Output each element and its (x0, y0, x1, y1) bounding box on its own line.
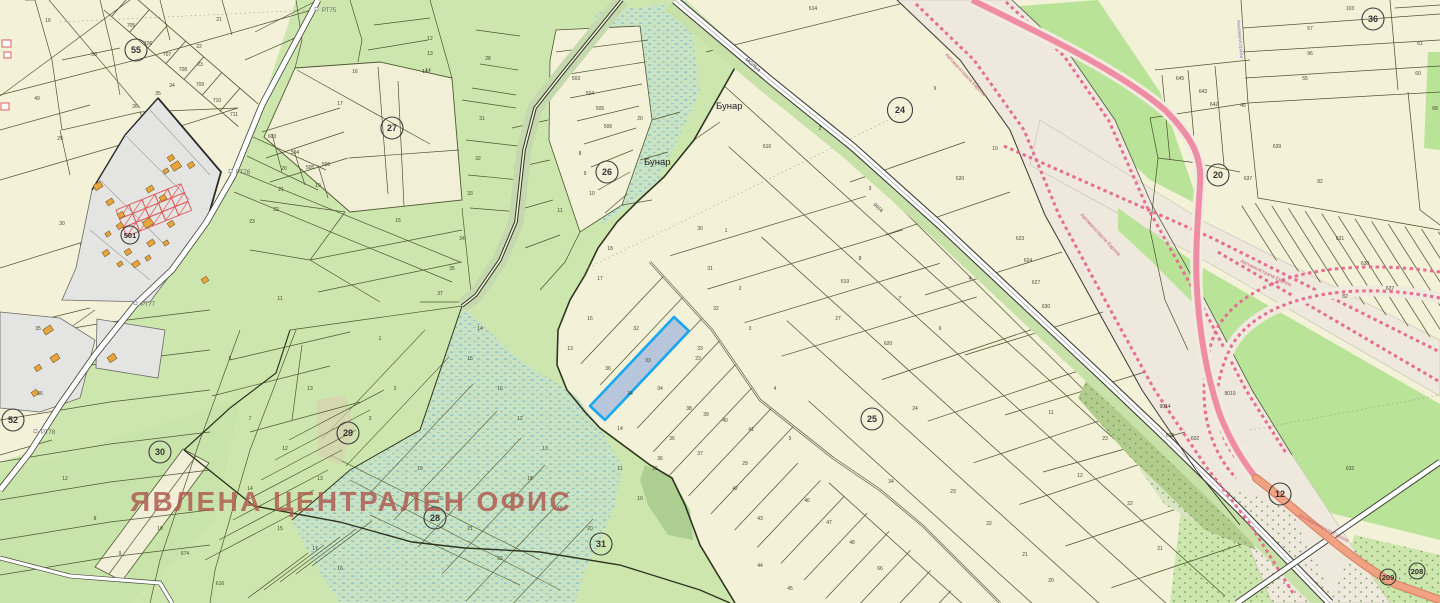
svg-text:41: 41 (748, 427, 754, 433)
svg-text:23: 23 (950, 489, 956, 495)
svg-text:9014: 9014 (1159, 404, 1170, 410)
svg-text:504: 504 (291, 150, 300, 156)
svg-text:637: 637 (1244, 176, 1253, 182)
svg-text:52: 52 (8, 415, 18, 425)
svg-text:22: 22 (986, 521, 992, 527)
svg-text:82: 82 (1317, 179, 1323, 185)
svg-text:38: 38 (686, 406, 692, 412)
svg-text:34: 34 (657, 386, 663, 392)
svg-text:13: 13 (567, 346, 573, 352)
svg-text:12: 12 (517, 416, 523, 422)
svg-text:14: 14 (617, 426, 623, 432)
svg-text:12: 12 (1275, 489, 1285, 499)
svg-text:34: 34 (888, 479, 894, 485)
svg-text:45: 45 (787, 586, 793, 592)
svg-text:20: 20 (1213, 170, 1223, 180)
svg-text:23: 23 (249, 219, 255, 225)
svg-text:РТ76: РТ76 (236, 170, 251, 176)
svg-text:20: 20 (637, 116, 643, 122)
svg-text:34: 34 (169, 83, 175, 89)
svg-text:503: 503 (572, 76, 581, 82)
svg-text:22: 22 (1127, 501, 1133, 507)
svg-text:13: 13 (317, 476, 323, 482)
svg-text:13: 13 (542, 446, 548, 452)
svg-text:22: 22 (196, 44, 202, 50)
svg-text:603: 603 (268, 134, 277, 140)
svg-text:3: 3 (749, 326, 752, 332)
svg-text:11: 11 (1048, 410, 1053, 416)
svg-text:47: 47 (826, 520, 832, 526)
svg-text:16: 16 (352, 69, 358, 75)
svg-text:ЯВЛЕНА ЦЕНТРАЛЕН ОФИС: ЯВЛЕНА ЦЕНТРАЛЕН ОФИС (130, 486, 572, 517)
svg-text:620: 620 (956, 176, 965, 182)
svg-text:36: 36 (605, 366, 611, 372)
svg-text:3: 3 (869, 186, 872, 192)
svg-text:48: 48 (849, 540, 855, 546)
svg-text:25: 25 (867, 414, 877, 424)
svg-text:8: 8 (859, 256, 862, 262)
svg-text:Бунар: Бунар (644, 157, 671, 168)
svg-text:1: 1 (725, 228, 728, 234)
svg-text:645: 645 (1176, 76, 1185, 82)
svg-text:15: 15 (395, 218, 401, 224)
svg-text:33: 33 (645, 358, 651, 364)
svg-text:21: 21 (1157, 546, 1163, 552)
svg-text:31: 31 (596, 539, 606, 549)
svg-text:2: 2 (819, 126, 822, 132)
svg-text:209: 209 (1382, 573, 1395, 582)
svg-text:34: 34 (627, 391, 633, 397)
svg-text:55: 55 (131, 45, 141, 55)
svg-text:630: 630 (1042, 304, 1051, 310)
svg-text:5: 5 (789, 436, 792, 442)
svg-text:708: 708 (179, 67, 188, 73)
svg-text:17: 17 (312, 546, 318, 552)
svg-text:506: 506 (604, 124, 613, 130)
svg-text:616: 616 (763, 144, 772, 150)
svg-text:32: 32 (633, 326, 639, 332)
svg-text:2: 2 (739, 286, 742, 292)
svg-text:35: 35 (35, 326, 41, 332)
svg-text:707: 707 (163, 52, 172, 58)
svg-text:20: 20 (587, 526, 593, 532)
svg-text:50: 50 (91, 52, 97, 58)
svg-text:632: 632 (1346, 466, 1355, 472)
svg-text:13: 13 (427, 51, 433, 57)
svg-text:12: 12 (62, 476, 68, 482)
svg-text:21: 21 (467, 526, 473, 532)
svg-text:639: 639 (1273, 144, 1282, 150)
svg-text:643: 643 (1199, 89, 1208, 95)
svg-text:29: 29 (57, 136, 63, 142)
svg-text:624: 624 (1024, 258, 1033, 264)
svg-text:19: 19 (315, 183, 321, 189)
svg-text:34: 34 (459, 236, 465, 242)
svg-text:45: 45 (1240, 103, 1246, 109)
svg-text:32: 32 (475, 156, 481, 162)
svg-text:709: 709 (196, 82, 205, 88)
svg-text:674: 674 (181, 551, 190, 557)
svg-text:29: 29 (343, 428, 353, 438)
svg-text:505: 505 (306, 165, 315, 171)
svg-text:2: 2 (394, 386, 397, 392)
svg-text:627: 627 (1032, 280, 1041, 286)
svg-text:619: 619 (841, 279, 850, 285)
svg-text:642: 642 (1210, 102, 1219, 108)
svg-text:3: 3 (369, 416, 372, 422)
svg-text:706: 706 (144, 41, 153, 47)
svg-text:26: 26 (602, 167, 612, 177)
svg-text:21: 21 (278, 187, 284, 193)
svg-text:12: 12 (1077, 473, 1083, 479)
svg-text:26: 26 (132, 104, 138, 110)
svg-text:8: 8 (579, 151, 582, 157)
svg-text:9: 9 (934, 86, 937, 92)
svg-text:15: 15 (652, 466, 658, 472)
svg-text:39: 39 (703, 412, 709, 418)
svg-text:705: 705 (127, 23, 136, 29)
svg-text:21: 21 (216, 17, 222, 23)
svg-text:15: 15 (467, 356, 473, 362)
svg-text:96: 96 (1307, 51, 1313, 57)
svg-text:31: 31 (479, 116, 485, 122)
svg-text:10: 10 (992, 146, 998, 152)
svg-text:24: 24 (895, 105, 905, 115)
svg-text:РТ78: РТ78 (41, 430, 56, 436)
svg-text:49: 49 (34, 96, 40, 102)
svg-text:710: 710 (213, 98, 222, 104)
svg-text:9: 9 (584, 171, 587, 177)
svg-text:16: 16 (587, 316, 593, 322)
svg-text:23: 23 (197, 62, 203, 68)
svg-text:37: 37 (437, 291, 443, 297)
svg-text:16: 16 (497, 386, 503, 392)
svg-text:24: 24 (912, 406, 918, 412)
svg-text:27: 27 (387, 123, 397, 133)
svg-text:33: 33 (697, 346, 703, 352)
svg-text:620: 620 (884, 341, 893, 347)
svg-text:21: 21 (1022, 552, 1028, 558)
svg-text:57: 57 (1307, 26, 1313, 32)
svg-text:630: 630 (1361, 261, 1370, 267)
svg-text:8: 8 (94, 516, 97, 522)
svg-text:44: 44 (757, 563, 763, 569)
svg-text:9: 9 (119, 551, 122, 557)
svg-text:12: 12 (282, 446, 288, 452)
svg-text:22: 22 (273, 207, 279, 213)
svg-text:РТ75: РТ75 (322, 8, 337, 14)
svg-text:23: 23 (1102, 436, 1108, 442)
svg-text:22: 22 (497, 556, 503, 562)
svg-text:27: 27 (835, 316, 841, 322)
svg-text:711: 711 (230, 112, 238, 118)
svg-text:1: 1 (379, 336, 382, 342)
svg-text:20: 20 (281, 166, 287, 172)
svg-text:37: 37 (697, 451, 703, 457)
svg-text:4: 4 (774, 386, 777, 392)
svg-text:6: 6 (939, 326, 942, 332)
svg-text:61: 61 (1417, 41, 1423, 47)
svg-text:17: 17 (337, 101, 343, 107)
svg-text:18: 18 (527, 476, 533, 482)
svg-text:60: 60 (1415, 71, 1421, 77)
svg-text:504: 504 (586, 91, 595, 97)
svg-text:20: 20 (1048, 578, 1054, 584)
svg-text:66: 66 (877, 566, 883, 572)
svg-text:623: 623 (1016, 236, 1025, 242)
svg-text:614: 614 (809, 6, 818, 12)
svg-text:31: 31 (707, 266, 713, 272)
svg-text:36: 36 (669, 436, 675, 442)
svg-text:10: 10 (637, 496, 643, 502)
svg-text:16: 16 (337, 566, 343, 572)
svg-text:55: 55 (1302, 76, 1308, 82)
svg-text:35: 35 (155, 91, 161, 97)
svg-text:35: 35 (449, 266, 455, 272)
svg-text:23: 23 (695, 356, 701, 362)
svg-text:10: 10 (157, 526, 163, 532)
svg-text:43: 43 (757, 516, 763, 522)
svg-text:208: 208 (1411, 567, 1424, 576)
svg-text:7: 7 (899, 296, 902, 302)
svg-text:14: 14 (422, 69, 428, 75)
svg-text:Бунар: Бунар (716, 101, 743, 112)
svg-text:33: 33 (467, 191, 473, 197)
svg-text:103: 103 (1346, 6, 1355, 12)
svg-text:9010: 9010 (1224, 391, 1235, 397)
svg-text:4: 4 (969, 276, 972, 282)
svg-text:30: 30 (155, 447, 165, 457)
svg-text:627: 627 (1386, 286, 1395, 292)
svg-text:631: 631 (1336, 236, 1345, 242)
svg-text:36: 36 (37, 391, 43, 397)
svg-text:501: 501 (124, 231, 137, 240)
svg-text:32: 32 (713, 306, 719, 312)
svg-text:602: 602 (1166, 433, 1175, 439)
svg-text:РТ77: РТ77 (141, 302, 156, 308)
svg-text:16: 16 (45, 18, 51, 24)
svg-text:29: 29 (742, 461, 748, 467)
svg-text:28: 28 (485, 56, 491, 62)
svg-text:82: 82 (1342, 294, 1348, 300)
svg-text:11: 11 (557, 208, 562, 214)
svg-text:6: 6 (229, 356, 232, 362)
svg-text:14: 14 (477, 326, 483, 332)
svg-text:17: 17 (597, 276, 603, 282)
svg-text:13: 13 (307, 386, 313, 392)
svg-text:10: 10 (589, 191, 595, 197)
svg-text:15: 15 (277, 526, 283, 532)
svg-text:68: 68 (1432, 106, 1438, 112)
svg-text:12: 12 (427, 36, 433, 42)
svg-text:18: 18 (607, 246, 613, 252)
svg-text:40: 40 (722, 418, 728, 424)
svg-text:36: 36 (657, 456, 663, 462)
svg-text:11: 11 (617, 466, 622, 472)
svg-text:11: 11 (277, 296, 282, 302)
svg-text:19: 19 (417, 466, 423, 472)
svg-text:30: 30 (59, 221, 65, 227)
svg-text:30: 30 (697, 226, 703, 232)
svg-text:506: 506 (322, 162, 331, 168)
svg-text:7: 7 (249, 416, 252, 422)
svg-text:616: 616 (216, 581, 225, 587)
svg-text:36: 36 (1368, 14, 1378, 24)
svg-text:42: 42 (732, 486, 738, 492)
svg-text:46: 46 (804, 498, 810, 504)
svg-text:505: 505 (596, 106, 605, 112)
svg-text:602: 602 (1191, 436, 1200, 442)
